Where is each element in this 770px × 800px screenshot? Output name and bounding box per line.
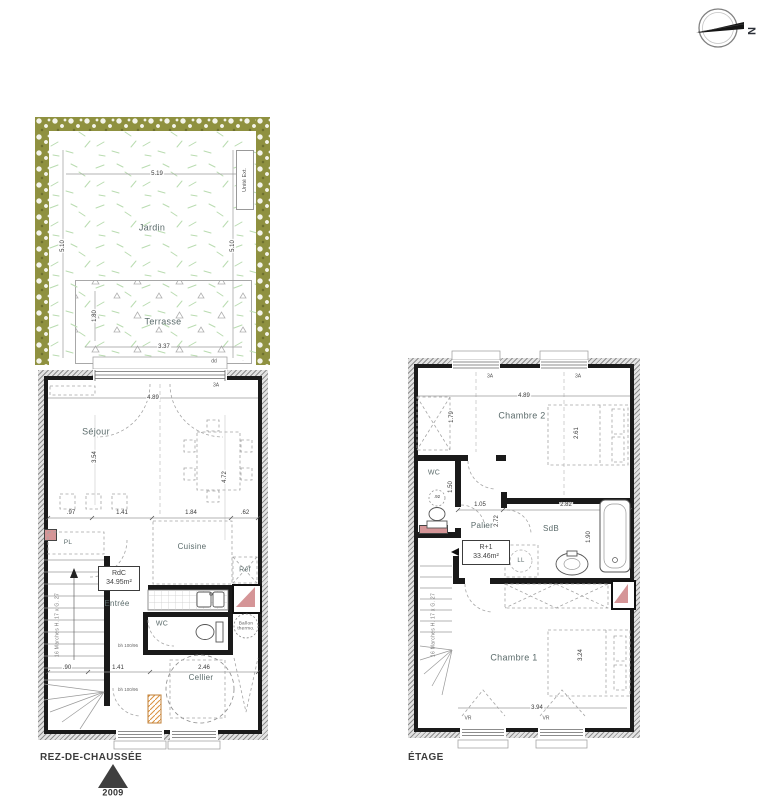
dim-sejour-depth: 3.54 [92,450,98,464]
dim-et-wc-width: .92 [433,495,441,500]
room-label-sdb: SdB [543,525,559,533]
dim-jardin-right: 5.10 [230,239,236,253]
dim-et-wc-depth: 1.50 [448,480,454,494]
dim-palier-depth: 2.72 [494,514,500,528]
dim-sejour-depth2: 4.72 [222,470,228,484]
et-stair-wall [453,556,459,584]
room-label-chambre1: Chambre 1 [490,654,537,663]
room-label-ref: Réf [239,567,251,574]
et-window-3a-right: 3A [575,375,581,380]
gf-window-3a-label: 3A [213,384,219,389]
room-label-entree: Entrée [104,600,129,608]
et-chambre1-wall-b [490,578,630,584]
dim-cellier-3: 2.46 [197,665,211,671]
et-title: ÉTAGE [408,752,444,763]
room-label-pl: PL [64,540,73,547]
et-window-3a-left: 3A [487,375,493,380]
dim-bed2-depth: 2.61 [574,426,580,440]
ballon-thermo-label: Ballon thermo. [237,622,254,631]
room-label-terrasse: Terrasse [145,318,182,327]
dim-kitchen-2: 1.41 [115,510,129,516]
gf-area-box: RdC 34.95m² [98,566,140,591]
marker-year-label: 2009 [102,789,123,798]
gf-left-duct [44,529,57,541]
et-vr-right: VR [543,717,550,722]
gf-wc-left-wall [143,612,148,655]
dim-kitchen-4: .62 [240,510,250,516]
ballon-line2: thermo. [237,626,254,631]
room-label-cellier: Cellier [189,674,214,682]
room-label-palier: Palier [471,522,493,530]
gf-area-name: RdC [101,569,137,578]
et-area-box: R+1 33.46m² [462,540,510,565]
compass-north-label: N [745,27,757,35]
dim-chambre1-width: 3.94 [530,705,544,711]
gf-window-dd-label: dd [211,360,217,365]
et-stairs-label: 16 Marches H. 17 x G. 27 [432,593,437,657]
exterior-unit-box: Unité Ext. [236,150,254,210]
compass: N [696,9,757,47]
et-duct-box [611,580,636,610]
room-label-sejour: Séjour [82,428,110,437]
dim-bed1-depth: 3.24 [578,648,584,662]
dim-sdb-width: 2.82 [559,502,573,508]
dim-kitchen-1: .97 [66,510,76,516]
ll-label: LL [517,558,524,564]
floorplan-canvas: N [0,0,770,800]
gf-stairs-label: 16 Marches H. 17 x G. 27 [56,593,61,657]
et-vr-left: VR [465,717,472,722]
gf-title: REZ-DE-CHAUSSÉE [40,752,142,763]
dim-cellier-2: 1.41 [111,665,125,671]
et-area-value: 33.46m² [465,552,507,561]
gf-area-value: 34.95m² [101,578,137,587]
north-marker-triangle [98,764,128,788]
dim-chambre2-width: 4.89 [517,393,531,399]
exterior-unit-label: Unité Ext. [242,168,248,192]
dim-terrasse-depth: 1.80 [92,309,98,323]
dim-cellier-1: .90 [62,665,72,671]
dim-sdb-depth: 1.90 [586,530,592,544]
dim-jardin-width: 5.19 [150,171,164,177]
gf-wc-top-wall [148,612,232,617]
et-wc-top-wall [418,455,460,461]
dim-terrasse-width: 3.37 [157,344,171,350]
et-wc-right-wall [455,455,461,507]
dim-kitchen-3: 1.84 [184,510,198,516]
gf-wc-bottom-wall [143,650,232,655]
room-label-chambre2: Chambre 2 [498,412,545,421]
gf-bh1-label: bh 100/96 [118,644,138,649]
et-wc-sill [419,525,448,534]
et-palier-top-wall-b [496,455,506,461]
dim-palier-width: 1.05 [473,502,487,508]
gf-bh2-label: bh 100/96 [118,688,138,693]
gf-kitchen-wall [148,585,232,590]
room-label-et-wc: WC [428,470,440,477]
room-label-gf-wc: WC [156,621,168,628]
dim-jardin-left: 5.10 [60,239,66,253]
dim-sejour-width: 4.89 [146,395,160,401]
room-label-cuisine: Cuisine [178,543,207,551]
gf-duct-box [232,584,262,614]
et-area-name: R+1 [465,543,507,552]
et-palier-top-wall-a [458,455,468,461]
dim-chambre2-left: 1.79 [449,410,455,424]
room-label-jardin: Jardin [139,224,165,233]
